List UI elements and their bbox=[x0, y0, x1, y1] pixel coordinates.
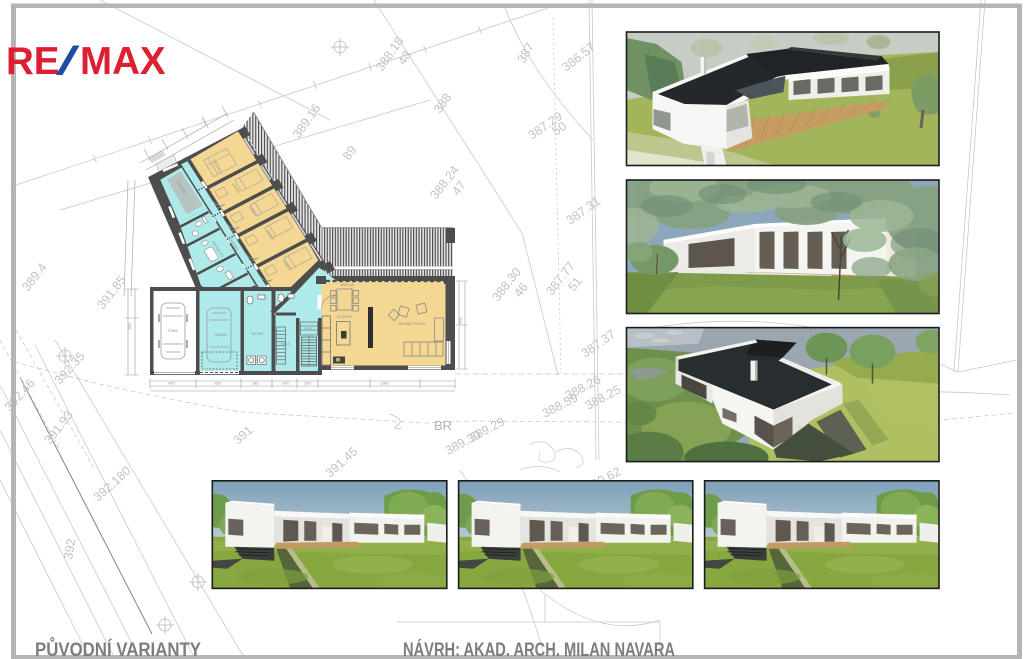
svg-text:HALA: HALA bbox=[281, 342, 291, 346]
svg-text:4500: 4500 bbox=[168, 381, 175, 385]
svg-text:12480: 12480 bbox=[380, 381, 389, 385]
svg-text:STANI: STANI bbox=[168, 329, 178, 333]
svg-text:PŮVODNÍ VARIANTY: PŮVODNÍ VARIANTY bbox=[35, 638, 201, 659]
svg-text:4250: 4250 bbox=[214, 381, 221, 385]
svg-text:2900: 2900 bbox=[252, 381, 259, 385]
svg-text:MAX: MAX bbox=[80, 40, 166, 83]
svg-text:NÁVRH: AKAD. ARCH. MILAN N: NÁVRH: AKAD. ARCH. MILAN NAVARA bbox=[403, 639, 675, 659]
svg-text:KUCHYN: KUCHYN bbox=[337, 315, 352, 319]
svg-text:TECHN.: TECHN. bbox=[251, 332, 264, 336]
svg-text:3200: 3200 bbox=[128, 323, 132, 330]
svg-text:2450: 2450 bbox=[282, 381, 289, 385]
svg-text:8750: 8750 bbox=[459, 317, 463, 324]
svg-text:SPIZ: SPIZ bbox=[305, 327, 313, 331]
svg-text:JIDELNA: JIDELNA bbox=[340, 283, 355, 287]
svg-text:BR: BR bbox=[434, 418, 452, 433]
svg-text:GARAZ: GARAZ bbox=[215, 333, 227, 337]
svg-text:2000: 2000 bbox=[304, 381, 311, 385]
svg-text:OBYVACI POKOJ: OBYVACI POKOJ bbox=[398, 322, 426, 326]
svg-text:RE: RE bbox=[6, 40, 59, 83]
